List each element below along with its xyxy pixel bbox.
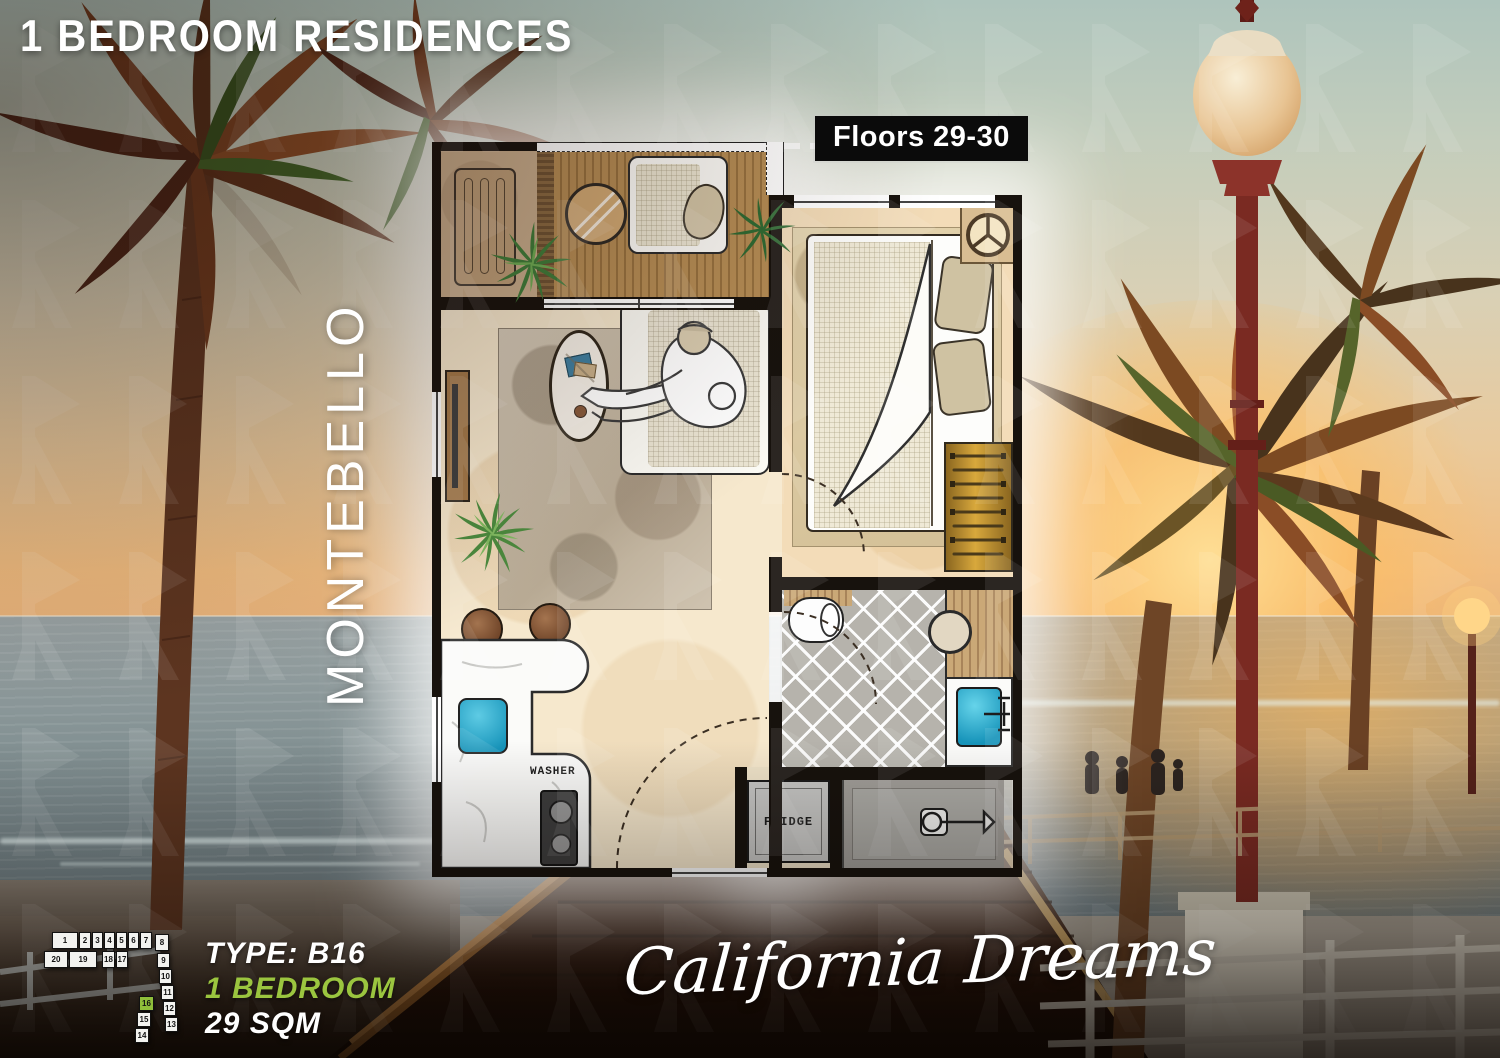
- page-title: 1 BEDROOM RESIDENCES: [20, 12, 573, 62]
- keyplan-unit-6: 6: [128, 932, 139, 949]
- unit-info: TYPE: B16 1 BEDROOM 29 SQM: [205, 936, 396, 1041]
- plant: [491, 222, 572, 304]
- entry-door-arc: [617, 718, 767, 868]
- keyplan-unit-3: 3: [92, 932, 103, 949]
- unit-type: TYPE: B16: [205, 936, 396, 971]
- keyplan-unit-1: 1: [52, 932, 78, 949]
- plant: [728, 198, 795, 262]
- keyplan-unit-8: 8: [155, 934, 169, 951]
- bathroom-door-arc: [784, 612, 876, 704]
- keyplan-unit-7: 7: [140, 932, 152, 949]
- keyplan-unit-10: 10: [159, 969, 172, 984]
- building-name: MONTEBELLO: [316, 272, 388, 737]
- keyplan: 1234567820191817910111213161514: [42, 930, 182, 1048]
- keyplan-unit-9: 9: [157, 953, 170, 968]
- keyplan-unit-5: 5: [116, 932, 127, 949]
- unit-bedrooms: 1 BEDROOM: [205, 971, 396, 1006]
- door-arcs: [617, 474, 876, 868]
- keyplan-unit-19: 19: [69, 951, 97, 968]
- plant: [454, 492, 534, 574]
- floor-plan: FRIDGE WAS: [432, 142, 1022, 877]
- keyplan-unit-4: 4: [104, 932, 115, 949]
- street-lamp-small: [1442, 586, 1500, 794]
- keyplan-unit-20: 20: [44, 951, 68, 968]
- shower-wand: [923, 812, 994, 832]
- keyplan-unit-2: 2: [79, 932, 91, 949]
- plan-detail-svg: [432, 142, 1022, 877]
- keyplan-unit-17: 17: [116, 951, 128, 968]
- keyplan-unit-13: 13: [165, 1017, 178, 1032]
- unit-area: 29 SQM: [205, 1006, 396, 1041]
- person-silhouette: [582, 322, 745, 427]
- keyplan-unit-11: 11: [161, 985, 174, 1000]
- keyplan-unit-12: 12: [163, 1001, 176, 1016]
- keyplan-unit-16: 16: [139, 996, 154, 1011]
- bedroom-door-arc: [782, 474, 864, 556]
- keyplan-unit-14: 14: [135, 1028, 149, 1043]
- keyplan-unit-18: 18: [102, 951, 115, 968]
- bath-faucet: [984, 698, 1010, 730]
- keyplan-unit-15: 15: [137, 1012, 151, 1027]
- poster-canvas: FRIDGE WAS: [0, 0, 1500, 1058]
- floors-badge: Floors 29-30: [815, 116, 1028, 161]
